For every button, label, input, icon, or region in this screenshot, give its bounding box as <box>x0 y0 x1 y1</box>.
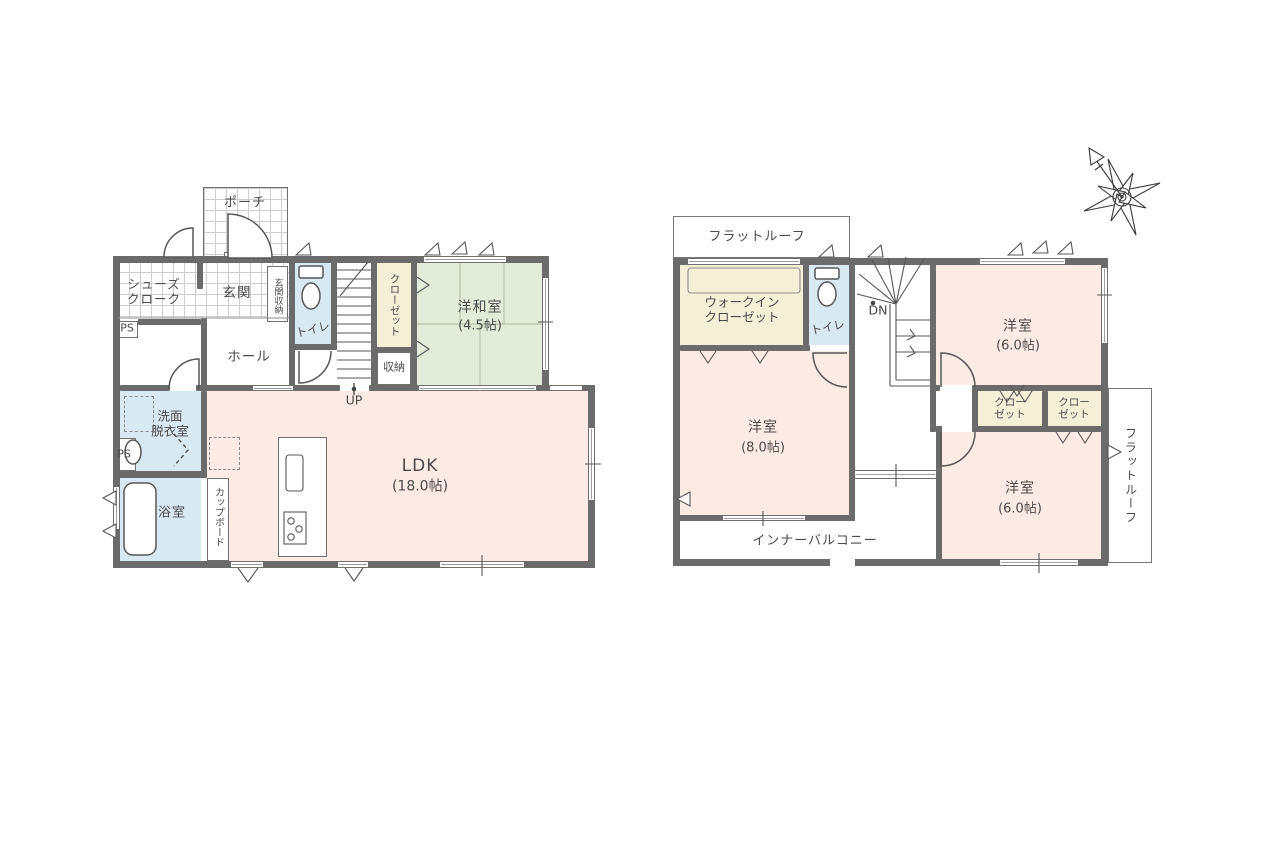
vent-icon <box>296 242 494 255</box>
room-label-bedroom-b-size: (8.0帖) <box>741 440 785 455</box>
room-label-tatami-size: (4.5帖) <box>458 318 502 333</box>
ps-lower-label: PS <box>117 449 131 462</box>
stairs-2f-fan <box>857 257 924 304</box>
vent-icon-left <box>103 491 116 538</box>
bathtub <box>124 483 156 555</box>
line-art-layer <box>0 0 1280 862</box>
toilet-tank-1f <box>299 266 323 278</box>
room-label-bath: 浴室 <box>158 505 186 520</box>
washroom-door-arc <box>169 359 199 389</box>
room-label-storage-1f: 収納 <box>383 362 405 375</box>
room-label-tatami-name: 洋和室 <box>458 300 503 317</box>
flat-roof-top-label: フラットルーフ <box>708 229 805 244</box>
toilet-bowl-1f <box>302 283 320 309</box>
vent-icon-right <box>1108 445 1121 459</box>
stove <box>284 512 306 544</box>
floor-plan-canvas: ポーチ シューズ クローク 玄関 玄関収納 トイレ ホール クローゼット 収納 … <box>0 0 1280 862</box>
room-label-cupboard: カップボード <box>211 487 226 547</box>
bedroom-c-door-arc <box>941 432 975 466</box>
room-label-bedroom-c-name: 洋室 <box>1005 481 1035 498</box>
room-label-closet-1f: クローゼット <box>388 274 403 337</box>
room-label-bedroom-c-size: (6.0帖) <box>998 501 1042 516</box>
front-door-arc <box>228 214 272 258</box>
vent-icon-left <box>677 492 690 506</box>
compass-icon <box>1084 148 1160 235</box>
cloak-door-arc <box>164 228 193 257</box>
toilet-tank-2f <box>815 268 839 279</box>
bedroom-a-door-arc <box>941 353 975 387</box>
closet-b-label: クロー ゼット <box>1058 397 1090 420</box>
window-tick <box>482 322 601 576</box>
stairs-1f-dot <box>352 387 357 392</box>
stairs-2f-rail <box>890 304 930 386</box>
toilet-bowl-2f <box>818 282 836 306</box>
inner-balcony-label: インナーバルコニー <box>752 533 878 548</box>
room-label-genkan-storage: 玄関収納 <box>272 278 285 314</box>
burner <box>296 526 302 532</box>
vent-icon <box>819 241 1073 257</box>
tatami-door-notch <box>417 277 429 357</box>
room-label-bedroom-a-name: 洋室 <box>1003 319 1033 336</box>
stairs-2f-breaks <box>907 329 915 357</box>
room-label-ldk-size: (18.0帖) <box>392 479 448 496</box>
stairs-dn-label: DN <box>869 304 888 319</box>
bedroom-b-door-arc <box>813 353 847 387</box>
room-label-porch: ポーチ <box>224 195 266 210</box>
room-label-hall: ホール <box>227 350 271 366</box>
room-label-shoes-cloak: シューズ クローク <box>127 277 181 307</box>
stairs-up-label: UP <box>346 394 363 409</box>
burner <box>288 534 294 540</box>
stairs-2f-treads <box>896 320 930 352</box>
room-label-washroom: 洗面 脱衣室 <box>151 409 189 439</box>
room-label-bedroom-a-size: (6.0帖) <box>996 338 1040 353</box>
window-vee <box>238 568 363 582</box>
room-label-wic: ウォークイン クローゼット <box>704 295 779 325</box>
room-label-ldk-name: LDK <box>402 456 439 476</box>
burner <box>288 518 294 524</box>
bath-folding-door <box>174 434 188 466</box>
stairs-1f-treads <box>337 270 371 378</box>
flat-roof-right-label: フラットルーフ <box>1123 427 1140 525</box>
room-label-bedroom-b-name: 洋室 <box>748 420 778 437</box>
room-label-genkan: 玄関 <box>223 286 252 302</box>
kitchen-sink <box>286 455 303 491</box>
ps-upper-label: PS <box>120 323 134 336</box>
toilet-door-arc-1f <box>299 351 331 383</box>
closet-a-label: クロー ゼット <box>994 397 1026 420</box>
wic-bedding <box>688 268 800 293</box>
